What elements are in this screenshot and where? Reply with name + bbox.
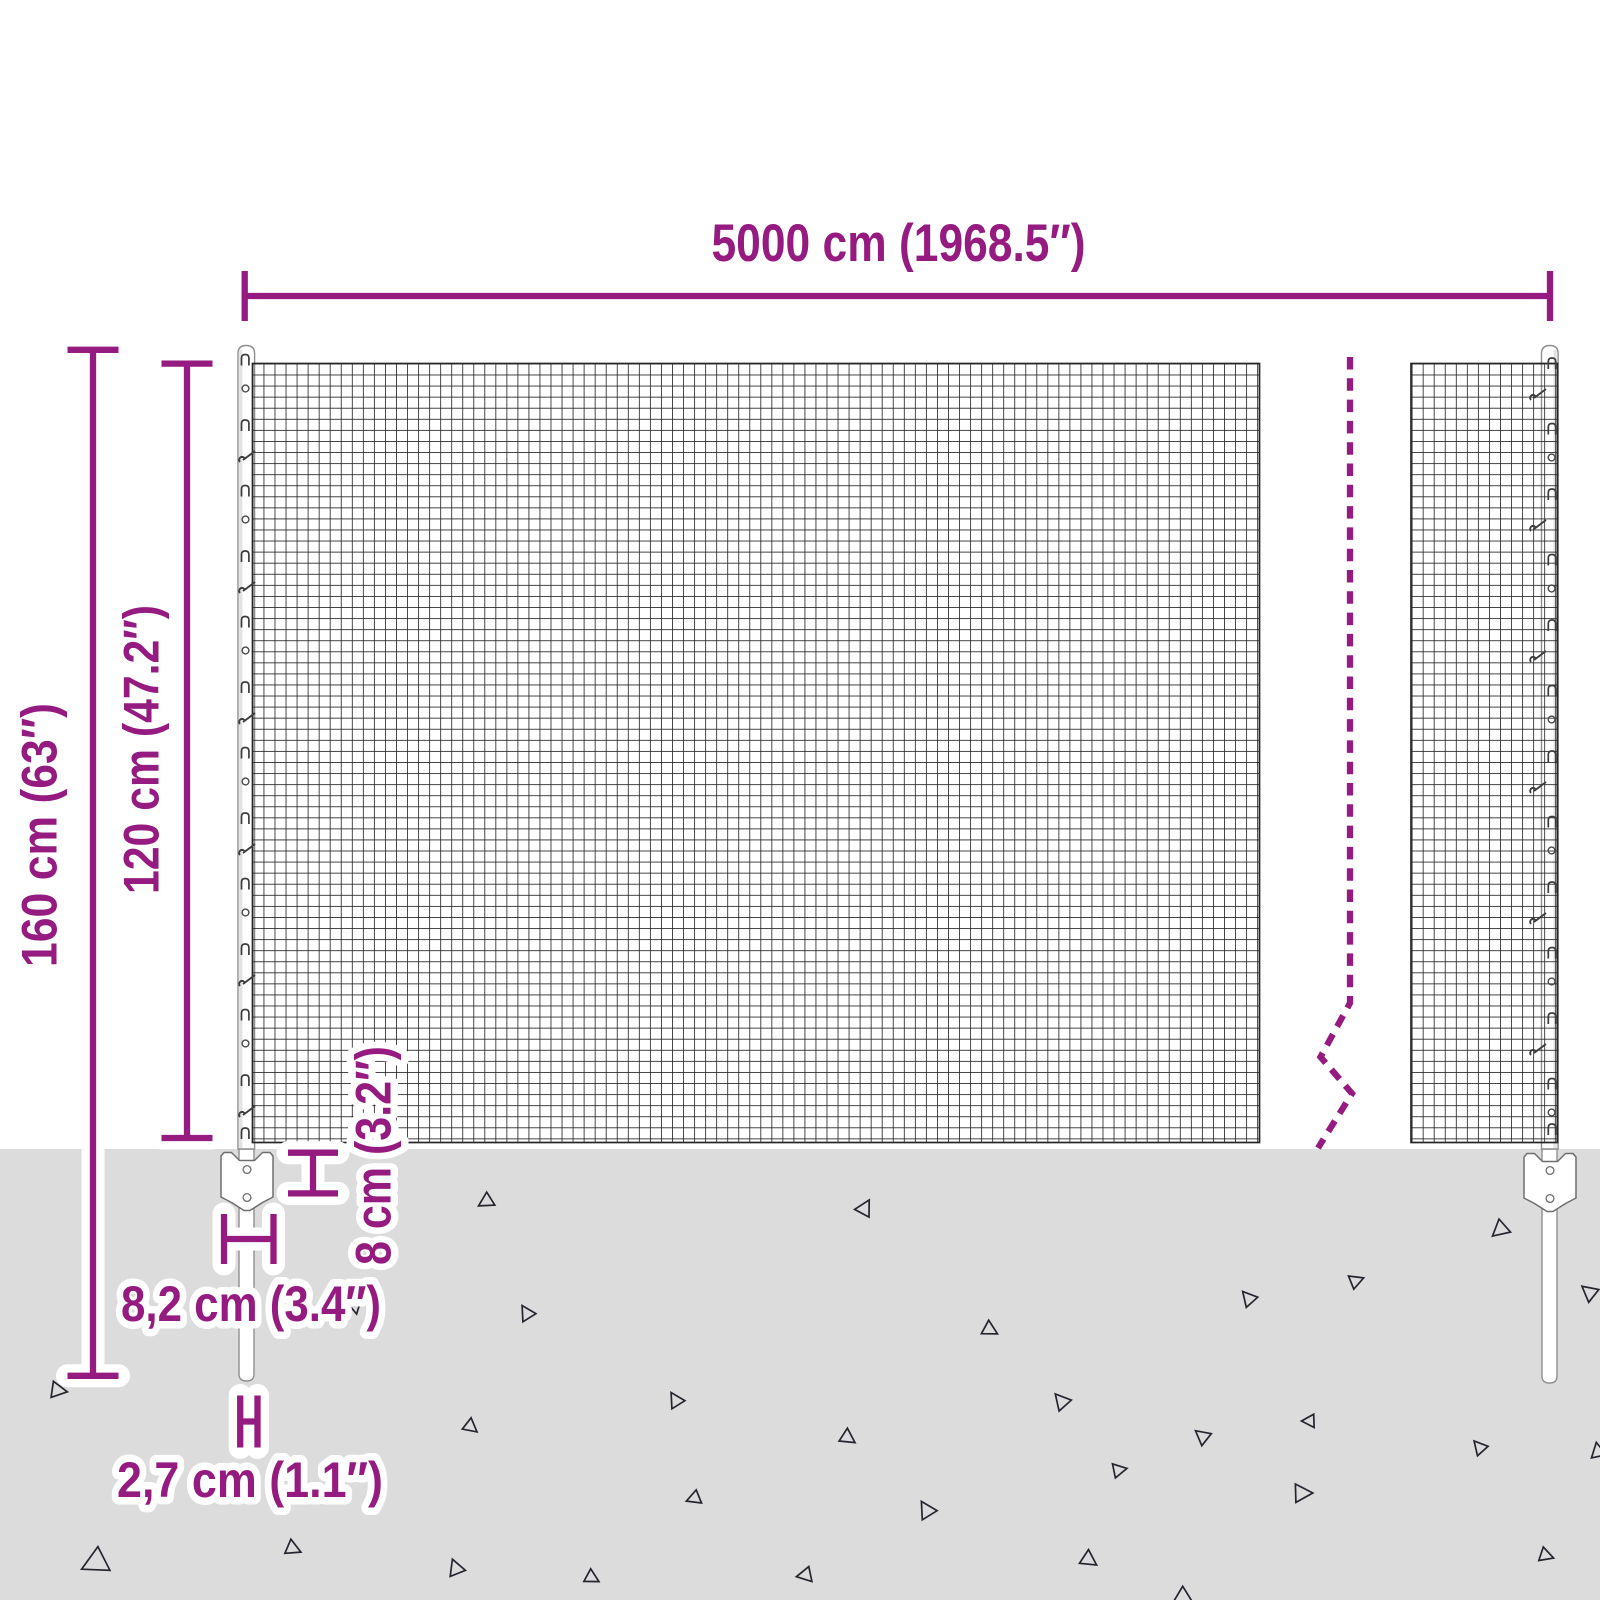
svg-text:8,2 cm (3.4″): 8,2 cm (3.4″) [121,1276,381,1332]
svg-text:160 cm (63″): 160 cm (63″) [12,703,68,967]
svg-text:120 cm (47.2″): 120 cm (47.2″) [114,605,170,894]
svg-text:2,7 cm (1.1″): 2,7 cm (1.1″) [117,1452,383,1508]
svg-text:8 cm (3.2″): 8 cm (3.2″) [346,1046,402,1265]
svg-text:5000 cm (1968.5″): 5000 cm (1968.5″) [712,214,1086,273]
